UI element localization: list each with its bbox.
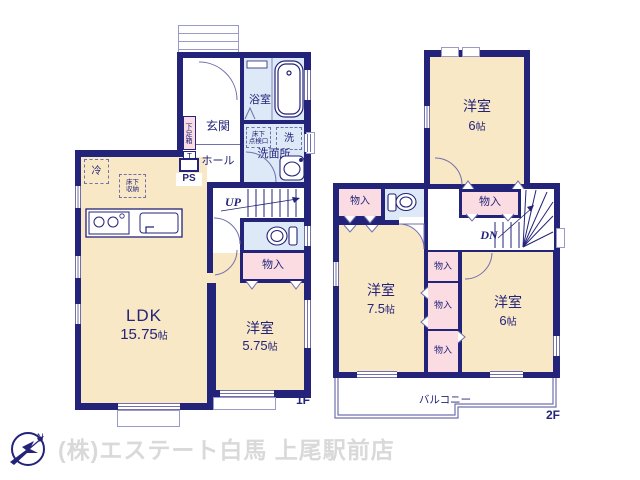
corridor-1f — [213, 218, 240, 255]
room-toilet-2f — [385, 189, 424, 220]
bedroom3-size-unit: 帖 — [507, 317, 517, 328]
closet-col-2-label: 物入 — [428, 300, 458, 310]
footer-company: (株)エステート白馬 上尾駅前店 — [58, 438, 598, 464]
compass-north-label: N — [37, 432, 44, 442]
fridge-space: 冷 — [84, 159, 109, 184]
bedroom2-name: 洋室 — [355, 283, 407, 299]
window — [304, 226, 311, 246]
window — [553, 336, 560, 356]
ps-label: PS — [176, 173, 202, 186]
compass-icon — [10, 433, 44, 465]
window — [75, 256, 81, 278]
bedroom-1f-size-unit: 帖 — [268, 342, 278, 353]
bedroom-1f-name: 洋室 — [234, 321, 286, 337]
bedroom1-size-unit: 帖 — [476, 122, 486, 133]
underfloor-storage: 床下 収納 — [119, 174, 146, 198]
closet-2f-left-label: 物入 — [344, 196, 376, 207]
underfloor-inspection: 床下 点検口 — [246, 127, 271, 148]
closet-2f-right-label: 物入 — [464, 196, 516, 208]
passage-opening — [205, 273, 214, 283]
bedroom2-size-unit: 帖 — [385, 305, 395, 316]
bedroom1-size: 6帖 — [459, 119, 495, 134]
window — [304, 70, 311, 100]
bedroom3-size: 6帖 — [490, 314, 526, 329]
bedroom-1f-size-value: 5.75 — [242, 338, 267, 353]
inspection-line2: 点検口 — [247, 138, 270, 145]
bedroom3-size-value: 6 — [499, 313, 506, 328]
window — [424, 106, 430, 128]
window — [220, 390, 274, 397]
terrace-step — [117, 410, 180, 427]
bedroom1-name: 洋室 — [451, 99, 503, 115]
room-toilet-1f — [244, 222, 304, 250]
room-bath — [244, 58, 304, 120]
hall-label: ホール — [194, 155, 242, 167]
ldk-name: LDK — [99, 306, 189, 325]
floor2-tag: 2F — [534, 409, 560, 422]
closet-col-3-label: 物入 — [428, 345, 458, 355]
ldk-size-unit: 帖 — [158, 331, 168, 342]
window — [304, 300, 311, 348]
bedroom2-size-value: 7.5 — [367, 301, 385, 316]
window-top-1 — [441, 47, 459, 57]
room-bedroom3-2f — [462, 252, 553, 372]
floor1-tag: 1F — [284, 394, 310, 407]
underfloor-storage-line2: 収納 — [120, 186, 145, 193]
window — [118, 403, 180, 410]
bedroom2-size: 7.5帖 — [353, 302, 409, 317]
window-top-2 — [462, 47, 480, 57]
genkan-label: 玄関 — [194, 120, 242, 133]
up-label: UP — [221, 196, 245, 209]
closet-col-1-label: 物入 — [428, 261, 458, 271]
bedroom1-size-value: 6 — [468, 118, 475, 133]
window — [75, 304, 81, 324]
toilet-door-opening — [399, 217, 424, 225]
floorplan-page: { "footer": { "company": "(株)エステート白馬 上尾駅… — [0, 0, 640, 480]
balcony-label: バルコニー — [405, 395, 485, 407]
window — [304, 134, 311, 152]
ldk-size: 15.75帖 — [99, 327, 189, 344]
window — [333, 262, 339, 286]
window — [75, 186, 81, 208]
ldk-size-value: 15.75 — [120, 326, 158, 343]
closet-1f-label: 物入 — [251, 259, 295, 271]
dn-label: DN — [477, 229, 501, 242]
bedroom3-name: 洋室 — [482, 295, 534, 311]
bath-label: 浴室 — [234, 94, 286, 106]
passage-to-bedroom — [213, 253, 240, 283]
window — [490, 371, 523, 378]
stair-fan-2f — [521, 189, 554, 250]
window-sill — [556, 228, 565, 248]
bedroom-1f-size: 5.75帖 — [230, 339, 290, 354]
washroom-label: 洗面所 — [244, 148, 304, 160]
terrace-step — [213, 397, 276, 410]
window — [357, 371, 397, 378]
washer-space: 洗 — [276, 127, 302, 150]
